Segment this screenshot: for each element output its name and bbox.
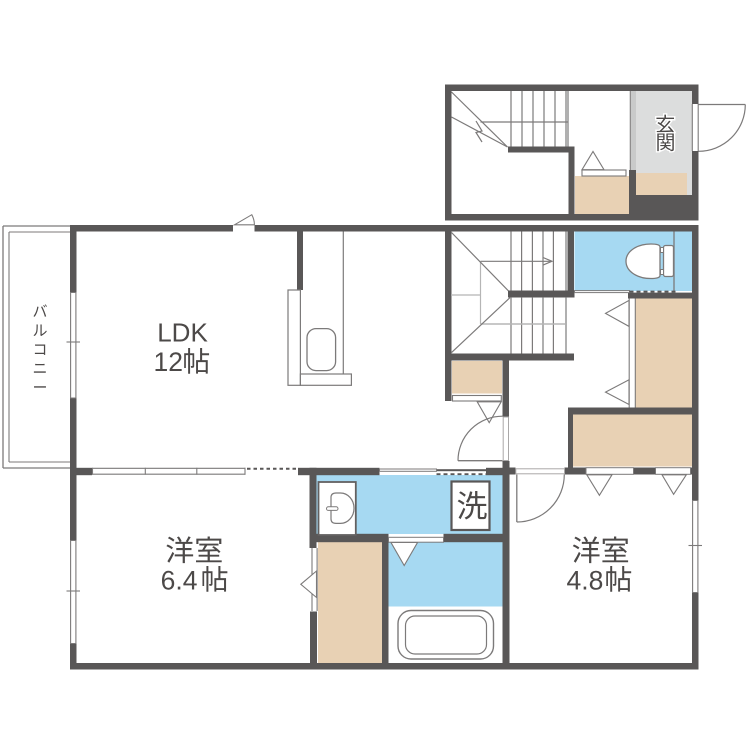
- svg-text:4.8: 4.8: [567, 566, 604, 596]
- svg-text:LDK: LDK: [157, 318, 208, 348]
- svg-text:6.4: 6.4: [161, 566, 198, 596]
- svg-text:12: 12: [154, 347, 183, 377]
